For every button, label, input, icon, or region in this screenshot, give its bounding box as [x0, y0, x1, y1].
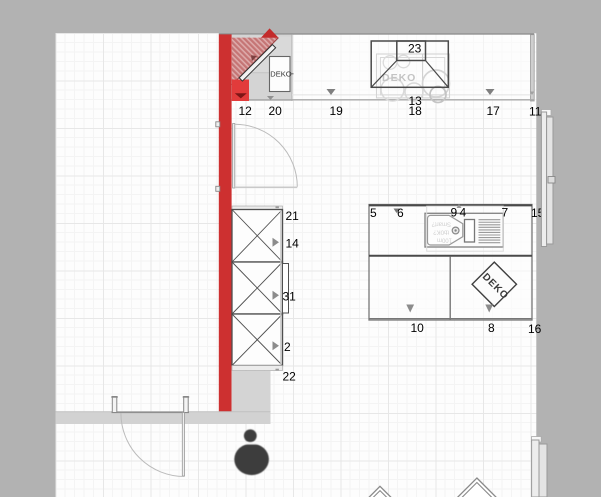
svg-text:17: 17 — [487, 104, 501, 118]
svg-text:18: 18 — [409, 104, 423, 118]
svg-text:10: 10 — [411, 321, 425, 335]
svg-text:9: 9 — [451, 206, 458, 220]
svg-text:DEKO: DEKO — [382, 72, 416, 84]
svg-text:tb0K?: tb0K? — [433, 229, 449, 235]
svg-text:16: 16 — [528, 322, 542, 336]
svg-text:14: 14 — [286, 237, 300, 251]
svg-text:22: 22 — [283, 370, 297, 384]
svg-text:5: 5 — [370, 206, 377, 220]
svg-text:100m: 100m — [437, 237, 452, 243]
svg-text:23: 23 — [408, 42, 422, 56]
svg-text:7: 7 — [502, 206, 509, 220]
svg-text:DEKO: DEKO — [270, 70, 291, 79]
svg-text:6: 6 — [397, 206, 404, 220]
svg-text:21: 21 — [286, 209, 300, 223]
svg-text:12: 12 — [239, 104, 253, 118]
svg-text:11: 11 — [529, 105, 542, 119]
svg-text:2: 2 — [284, 340, 291, 354]
svg-text:4: 4 — [460, 206, 467, 220]
svg-text:19: 19 — [330, 104, 344, 118]
svg-text:20: 20 — [269, 104, 283, 118]
svg-text:8: 8 — [488, 321, 495, 335]
svg-text:Smart?: Smart? — [431, 221, 451, 227]
svg-text:31: 31 — [283, 290, 297, 304]
